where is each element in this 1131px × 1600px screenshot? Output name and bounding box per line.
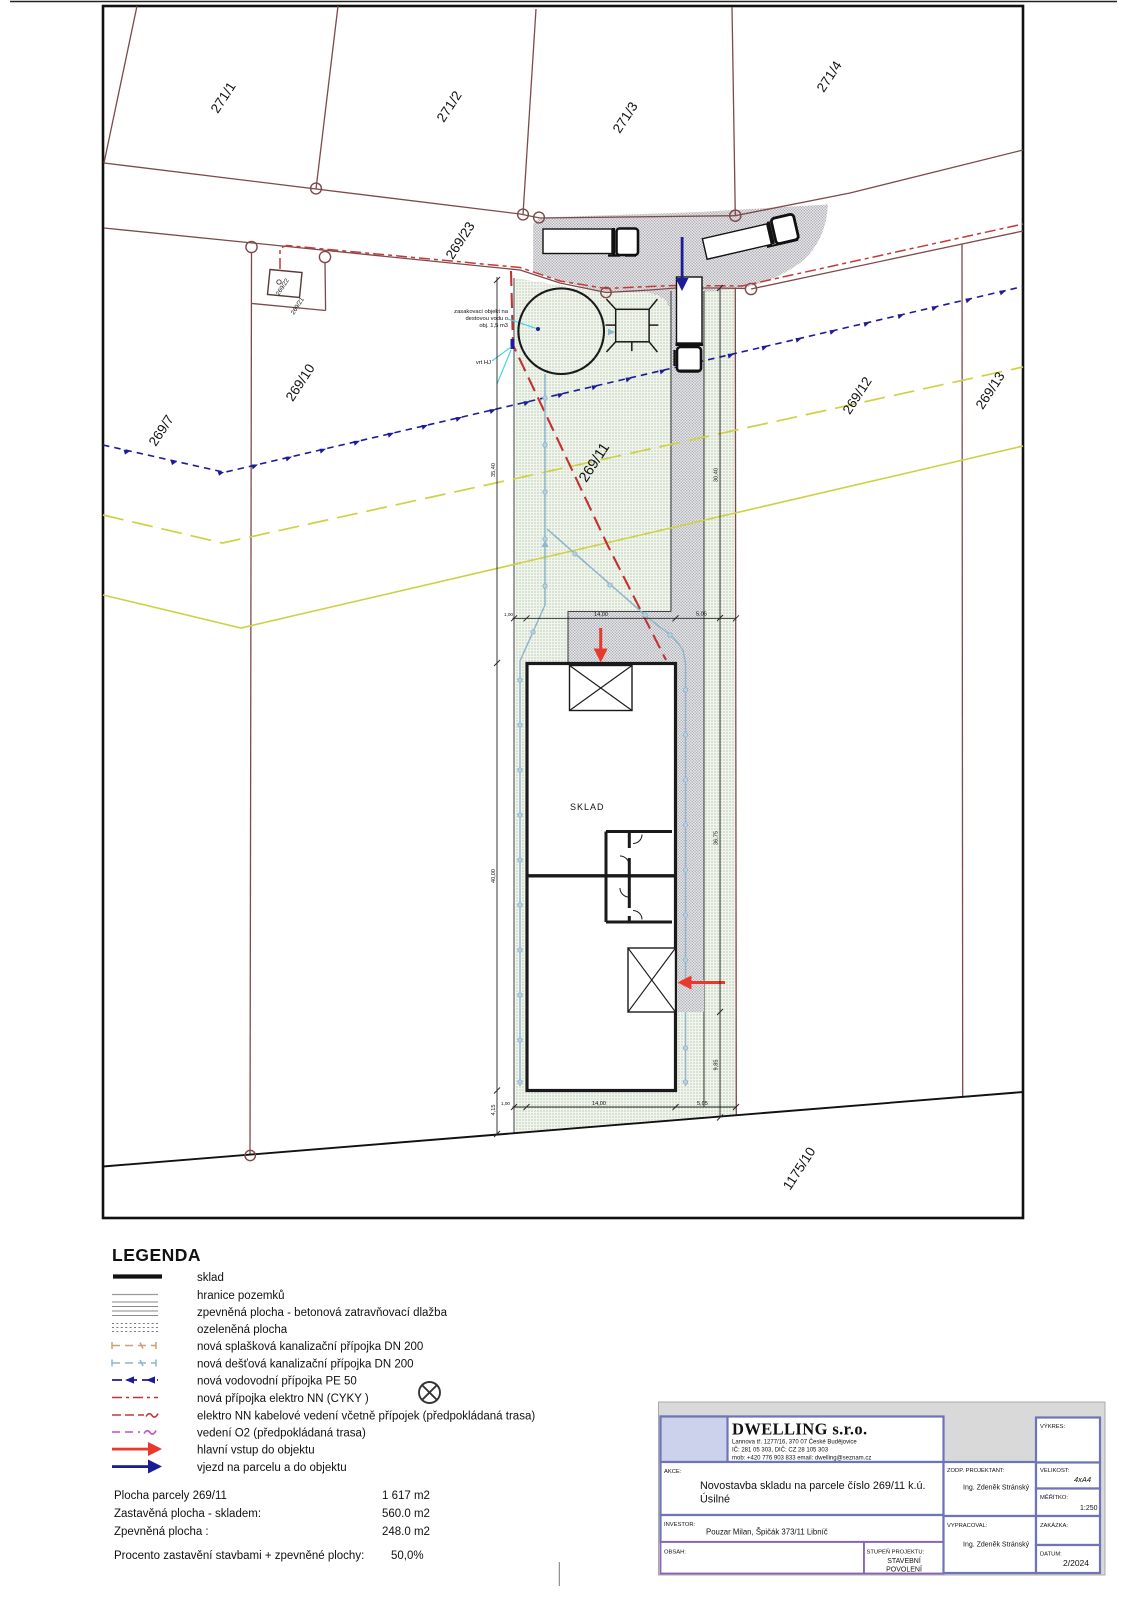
svg-text:nová splašková kanalizační pří: nová splašková kanalizační přípojka DN 2…: [197, 1341, 423, 1353]
svg-text:mob: +420 776 903 833 email:: mob: +420 776 903 833 email: dwelling@se…: [732, 1456, 871, 1462]
svg-text:LEGENDA: LEGENDA: [112, 1245, 201, 1265]
svg-text:hlavní vstup do objektu: hlavní vstup do objektu: [197, 1445, 315, 1457]
svg-text:DWELLING s.r.o.: DWELLING s.r.o.: [732, 1420, 868, 1439]
svg-text:14,00: 14,00: [594, 612, 608, 618]
svg-text:5,05: 5,05: [696, 612, 707, 618]
svg-text:4xA4: 4xA4: [1074, 1475, 1091, 1484]
svg-text:IČ: 281 05 303, DIČ: CZ 28 105: IČ: 281 05 303, DIČ: CZ 28 105 303: [732, 1447, 829, 1454]
svg-text:MĚŘÍTKO:: MĚŘÍTKO:: [1040, 1493, 1068, 1501]
svg-text:INVESTOR:: INVESTOR:: [664, 1522, 696, 1528]
svg-text:destovou vodu o: destovou vodu o: [465, 316, 508, 322]
svg-text:vrt HJ: vrt HJ: [476, 360, 491, 366]
svg-text:30,40: 30,40: [714, 468, 720, 482]
svg-text:Procento zastavění stavbami +: Procento zastavění stavbami + zpevněné p…: [114, 1550, 364, 1562]
svg-text:5,05: 5,05: [697, 1101, 708, 1107]
svg-text:248.0 m2: 248.0 m2: [382, 1526, 430, 1538]
svg-text:1:250: 1:250: [1080, 1505, 1098, 1512]
svg-text:zasakovaci objekt na: zasakovaci objekt na: [454, 309, 509, 315]
svg-text:Ing. Zdeněk Stránský: Ing. Zdeněk Stránský: [963, 1542, 1030, 1549]
svg-text:POVOLENÍ: POVOLENÍ: [886, 1565, 922, 1574]
svg-text:obj. 1,5 m3: obj. 1,5 m3: [479, 323, 508, 329]
svg-text:VELIKOST:: VELIKOST:: [1040, 1468, 1070, 1474]
svg-text:4,15: 4,15: [491, 1105, 497, 1116]
svg-text:Zastavěná plocha - skladem:: Zastavěná plocha - skladem:: [114, 1508, 261, 1520]
svg-text:1 617 m2: 1 617 m2: [382, 1490, 430, 1502]
svg-text:50,0%: 50,0%: [391, 1550, 424, 1562]
svg-text:zpevněná plocha - betonová zat: zpevněná plocha - betonová zatravňovací …: [197, 1307, 448, 1319]
svg-text:hranice pozemků: hranice pozemků: [197, 1290, 285, 1302]
svg-text:9,85: 9,85: [714, 1060, 720, 1071]
svg-text:STUPEŇ PROJEKTU:: STUPEŇ PROJEKTU:: [867, 1549, 925, 1556]
svg-text:Úsilné: Úsilné: [700, 1493, 730, 1506]
svg-text:Novostavba skladu na parcele č: Novostavba skladu na parcele číslo 269/1…: [700, 1480, 925, 1492]
svg-text:Lannova tř. 1277/16, 370 07 Če: Lannova tř. 1277/16, 370 07 České Budějo…: [732, 1439, 857, 1446]
svg-text:nová vodovodní přípojka PE 50: nová vodovodní přípojka PE 50: [197, 1376, 357, 1388]
svg-text:1,00: 1,00: [504, 612, 513, 617]
svg-text:VYPRACOVAL:: VYPRACOVAL:: [947, 1523, 988, 1529]
svg-text:1,00: 1,00: [501, 1101, 510, 1106]
svg-text:Pouzar Milan, Špičák 373/11 Li: Pouzar Milan, Špičák 373/11 Libníč: [706, 1528, 828, 1537]
svg-text:elektro NN kabelové vedení vče: elektro NN kabelové vedení včetně přípoj…: [197, 1411, 535, 1423]
svg-text:40,00: 40,00: [491, 869, 497, 883]
svg-text:Plocha parcely 269/11: Plocha parcely 269/11: [114, 1490, 227, 1502]
svg-text:Ing. Zdeněk Stránský: Ing. Zdeněk Stránský: [963, 1485, 1030, 1492]
svg-text:ozeleněná plocha: ozeleněná plocha: [197, 1324, 288, 1336]
svg-text:nová přípojka elektro NN (CYKY: nová přípojka elektro NN (CYKY ): [197, 1393, 369, 1405]
svg-text:vedení O2 (předpokládaná trasa: vedení O2 (předpokládaná trasa): [197, 1428, 366, 1440]
svg-text:35,40: 35,40: [491, 463, 497, 477]
svg-text:DATUM:: DATUM:: [1040, 1552, 1062, 1558]
svg-text:AKCE:: AKCE:: [664, 1469, 682, 1475]
svg-text:vjezd na parcelu a do objektu: vjezd na parcelu a do objektu: [197, 1462, 347, 1474]
svg-text:ZODP. PROJEKTANT:: ZODP. PROJEKTANT:: [947, 1468, 1005, 1474]
svg-text:nová dešťová kanalizační přípo: nová dešťová kanalizační přípojka DN 200: [197, 1359, 414, 1371]
svg-text:Zpevněná plocha :: Zpevněná plocha :: [114, 1526, 209, 1538]
svg-text:SKLAD: SKLAD: [570, 802, 605, 812]
svg-text:14,00: 14,00: [592, 1101, 606, 1107]
svg-text:sklad: sklad: [197, 1272, 224, 1284]
svg-text:OBSAH:: OBSAH:: [664, 1550, 686, 1556]
svg-text:VÝKRES:: VÝKRES:: [1040, 1423, 1066, 1430]
svg-text:560.0 m2: 560.0 m2: [382, 1508, 430, 1520]
svg-text:36,75: 36,75: [714, 831, 720, 845]
svg-text:2/2024: 2/2024: [1063, 1558, 1089, 1568]
svg-text:STAVEBNÍ: STAVEBNÍ: [887, 1556, 921, 1565]
svg-text:ZAKÁZKA:: ZAKÁZKA:: [1040, 1522, 1068, 1529]
